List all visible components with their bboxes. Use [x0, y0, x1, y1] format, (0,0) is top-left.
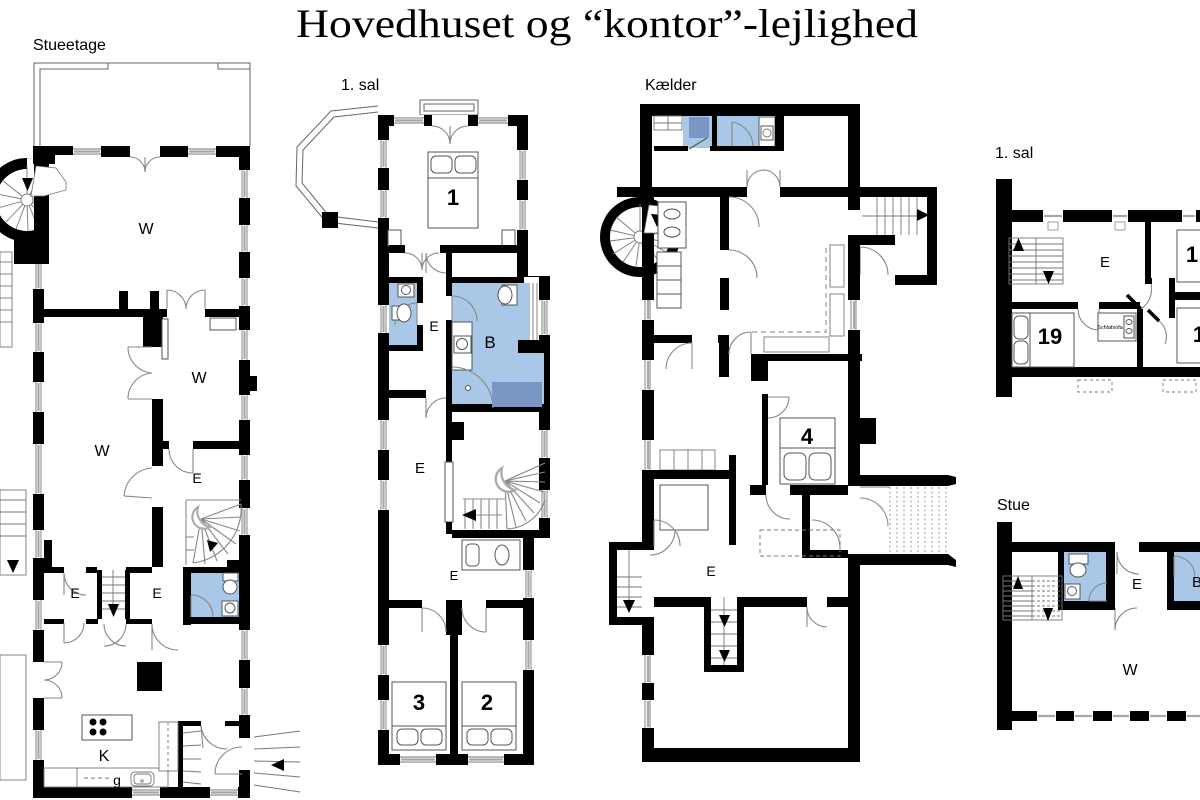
svg-text:1: 1 — [1193, 322, 1200, 347]
svg-text:1. sal: 1. sal — [995, 145, 1033, 162]
svg-text:Hovedhuset og “kontor”-lejligh: Hovedhuset og “kontor”-lejlighed — [296, 1, 918, 46]
svg-text:1. sal: 1. sal — [341, 77, 379, 94]
svg-text:W: W — [94, 443, 110, 460]
svg-text:Stueetage: Stueetage — [33, 37, 106, 54]
svg-text:1: 1 — [1186, 242, 1198, 267]
svg-text:E: E — [152, 585, 161, 601]
svg-text:E: E — [450, 568, 459, 583]
svg-text:g: g — [113, 772, 121, 788]
svg-text:Schlafsofa: Schlafsofa — [1097, 325, 1124, 331]
svg-text:E: E — [1100, 254, 1110, 271]
svg-text:E: E — [1132, 576, 1142, 593]
svg-text:Stue: Stue — [997, 497, 1030, 514]
svg-text:E: E — [706, 563, 715, 579]
svg-text:1: 1 — [447, 185, 459, 210]
svg-text:K: K — [99, 748, 110, 765]
svg-text:B: B — [1192, 574, 1200, 591]
svg-text:E: E — [415, 460, 425, 477]
svg-text:4: 4 — [801, 424, 814, 449]
svg-text:E: E — [192, 470, 201, 486]
svg-text:W: W — [138, 221, 154, 238]
svg-text:W: W — [1122, 662, 1138, 679]
svg-text:B: B — [484, 333, 495, 352]
svg-text:19: 19 — [1038, 324, 1062, 349]
svg-text:Kælder: Kælder — [645, 77, 697, 94]
svg-text:2: 2 — [481, 690, 493, 715]
svg-text:E: E — [70, 585, 79, 601]
svg-text:W: W — [191, 370, 207, 387]
svg-text:3: 3 — [413, 690, 425, 715]
svg-text:E: E — [429, 318, 438, 334]
